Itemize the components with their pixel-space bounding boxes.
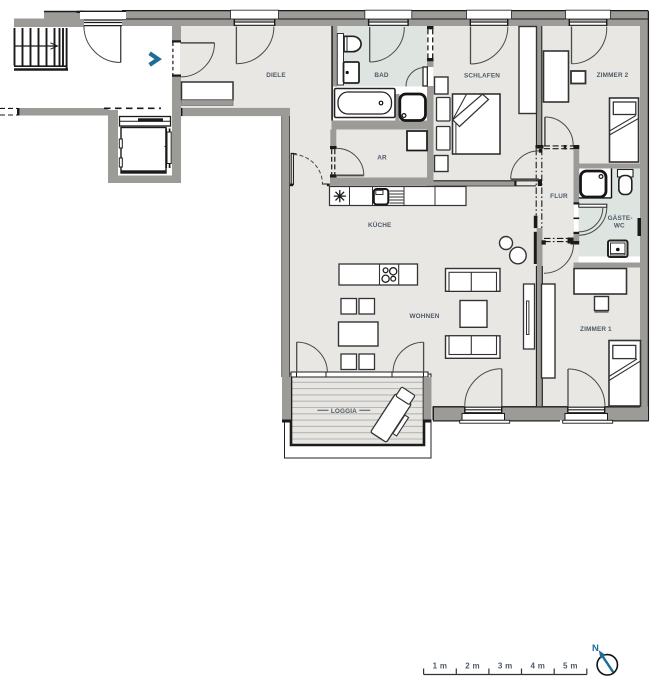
svg-text:N: N bbox=[592, 643, 599, 654]
svg-text:1 m: 1 m bbox=[433, 661, 448, 670]
svg-text:AR: AR bbox=[377, 154, 387, 161]
svg-text:3 m: 3 m bbox=[498, 661, 513, 670]
svg-text:ZIMMER 2: ZIMMER 2 bbox=[597, 72, 629, 79]
svg-text:WOHNEN: WOHNEN bbox=[409, 313, 439, 320]
svg-text:LOGGIA: LOGGIA bbox=[331, 408, 357, 415]
svg-text:WC: WC bbox=[614, 223, 625, 230]
svg-text:2 m: 2 m bbox=[465, 661, 480, 670]
svg-text:KÜCHE: KÜCHE bbox=[368, 220, 392, 229]
svg-text:GÄSTE-: GÄSTE- bbox=[608, 214, 633, 222]
svg-text:SCHLAFEN: SCHLAFEN bbox=[464, 72, 500, 79]
svg-text:4 m: 4 m bbox=[530, 661, 545, 670]
svg-text:FLUR: FLUR bbox=[550, 193, 568, 200]
svg-text:DIELE: DIELE bbox=[266, 72, 286, 79]
svg-text:BAD: BAD bbox=[374, 72, 389, 79]
svg-text:5 m: 5 m bbox=[563, 661, 578, 670]
svg-text:ZIMMER 1: ZIMMER 1 bbox=[580, 326, 612, 333]
